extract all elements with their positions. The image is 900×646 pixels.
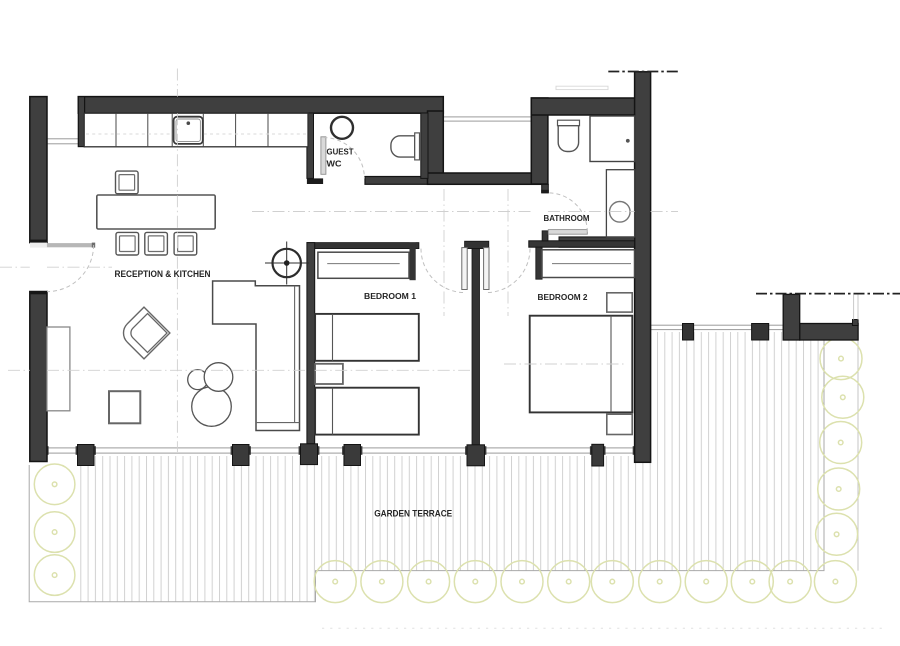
svg-text:RECEPTION & KITCHEN: RECEPTION & KITCHEN (115, 269, 211, 279)
svg-text:BEDROOM 2: BEDROOM 2 (538, 292, 588, 302)
svg-text:GUEST: GUEST (327, 146, 355, 156)
svg-text:BEDROOM 1: BEDROOM 1 (364, 291, 416, 301)
svg-text:WC: WC (327, 158, 342, 168)
svg-text:BATHROOM: BATHROOM (544, 213, 590, 223)
svg-text:GARDEN TERRACE: GARDEN TERRACE (374, 509, 452, 519)
